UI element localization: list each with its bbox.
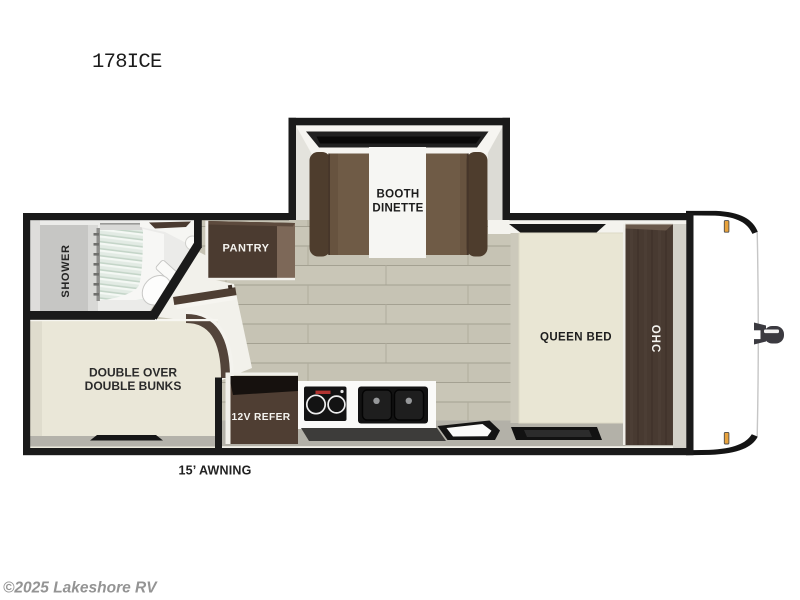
svg-text:BOOTH: BOOTH	[376, 189, 419, 201]
svg-text:DOUBLE OVER: DOUBLE OVER	[89, 366, 177, 380]
svg-text:PANTRY: PANTRY	[223, 243, 270, 255]
svg-text:SHOWER: SHOWER	[60, 244, 72, 297]
svg-text:12V REFER: 12V REFER	[231, 412, 290, 423]
svg-text:OHC: OHC	[649, 325, 661, 354]
svg-text:QUEEN BED: QUEEN BED	[540, 332, 612, 344]
svg-text:©2025 Lakeshore RV: ©2025 Lakeshore RV	[3, 580, 158, 597]
svg-text:DOUBLE BUNKS: DOUBLE BUNKS	[85, 379, 182, 393]
svg-text:DINETTE: DINETTE	[372, 203, 423, 215]
svg-text:178ICE: 178ICE	[92, 51, 162, 74]
svg-text:15’ AWNING: 15’ AWNING	[178, 464, 251, 478]
